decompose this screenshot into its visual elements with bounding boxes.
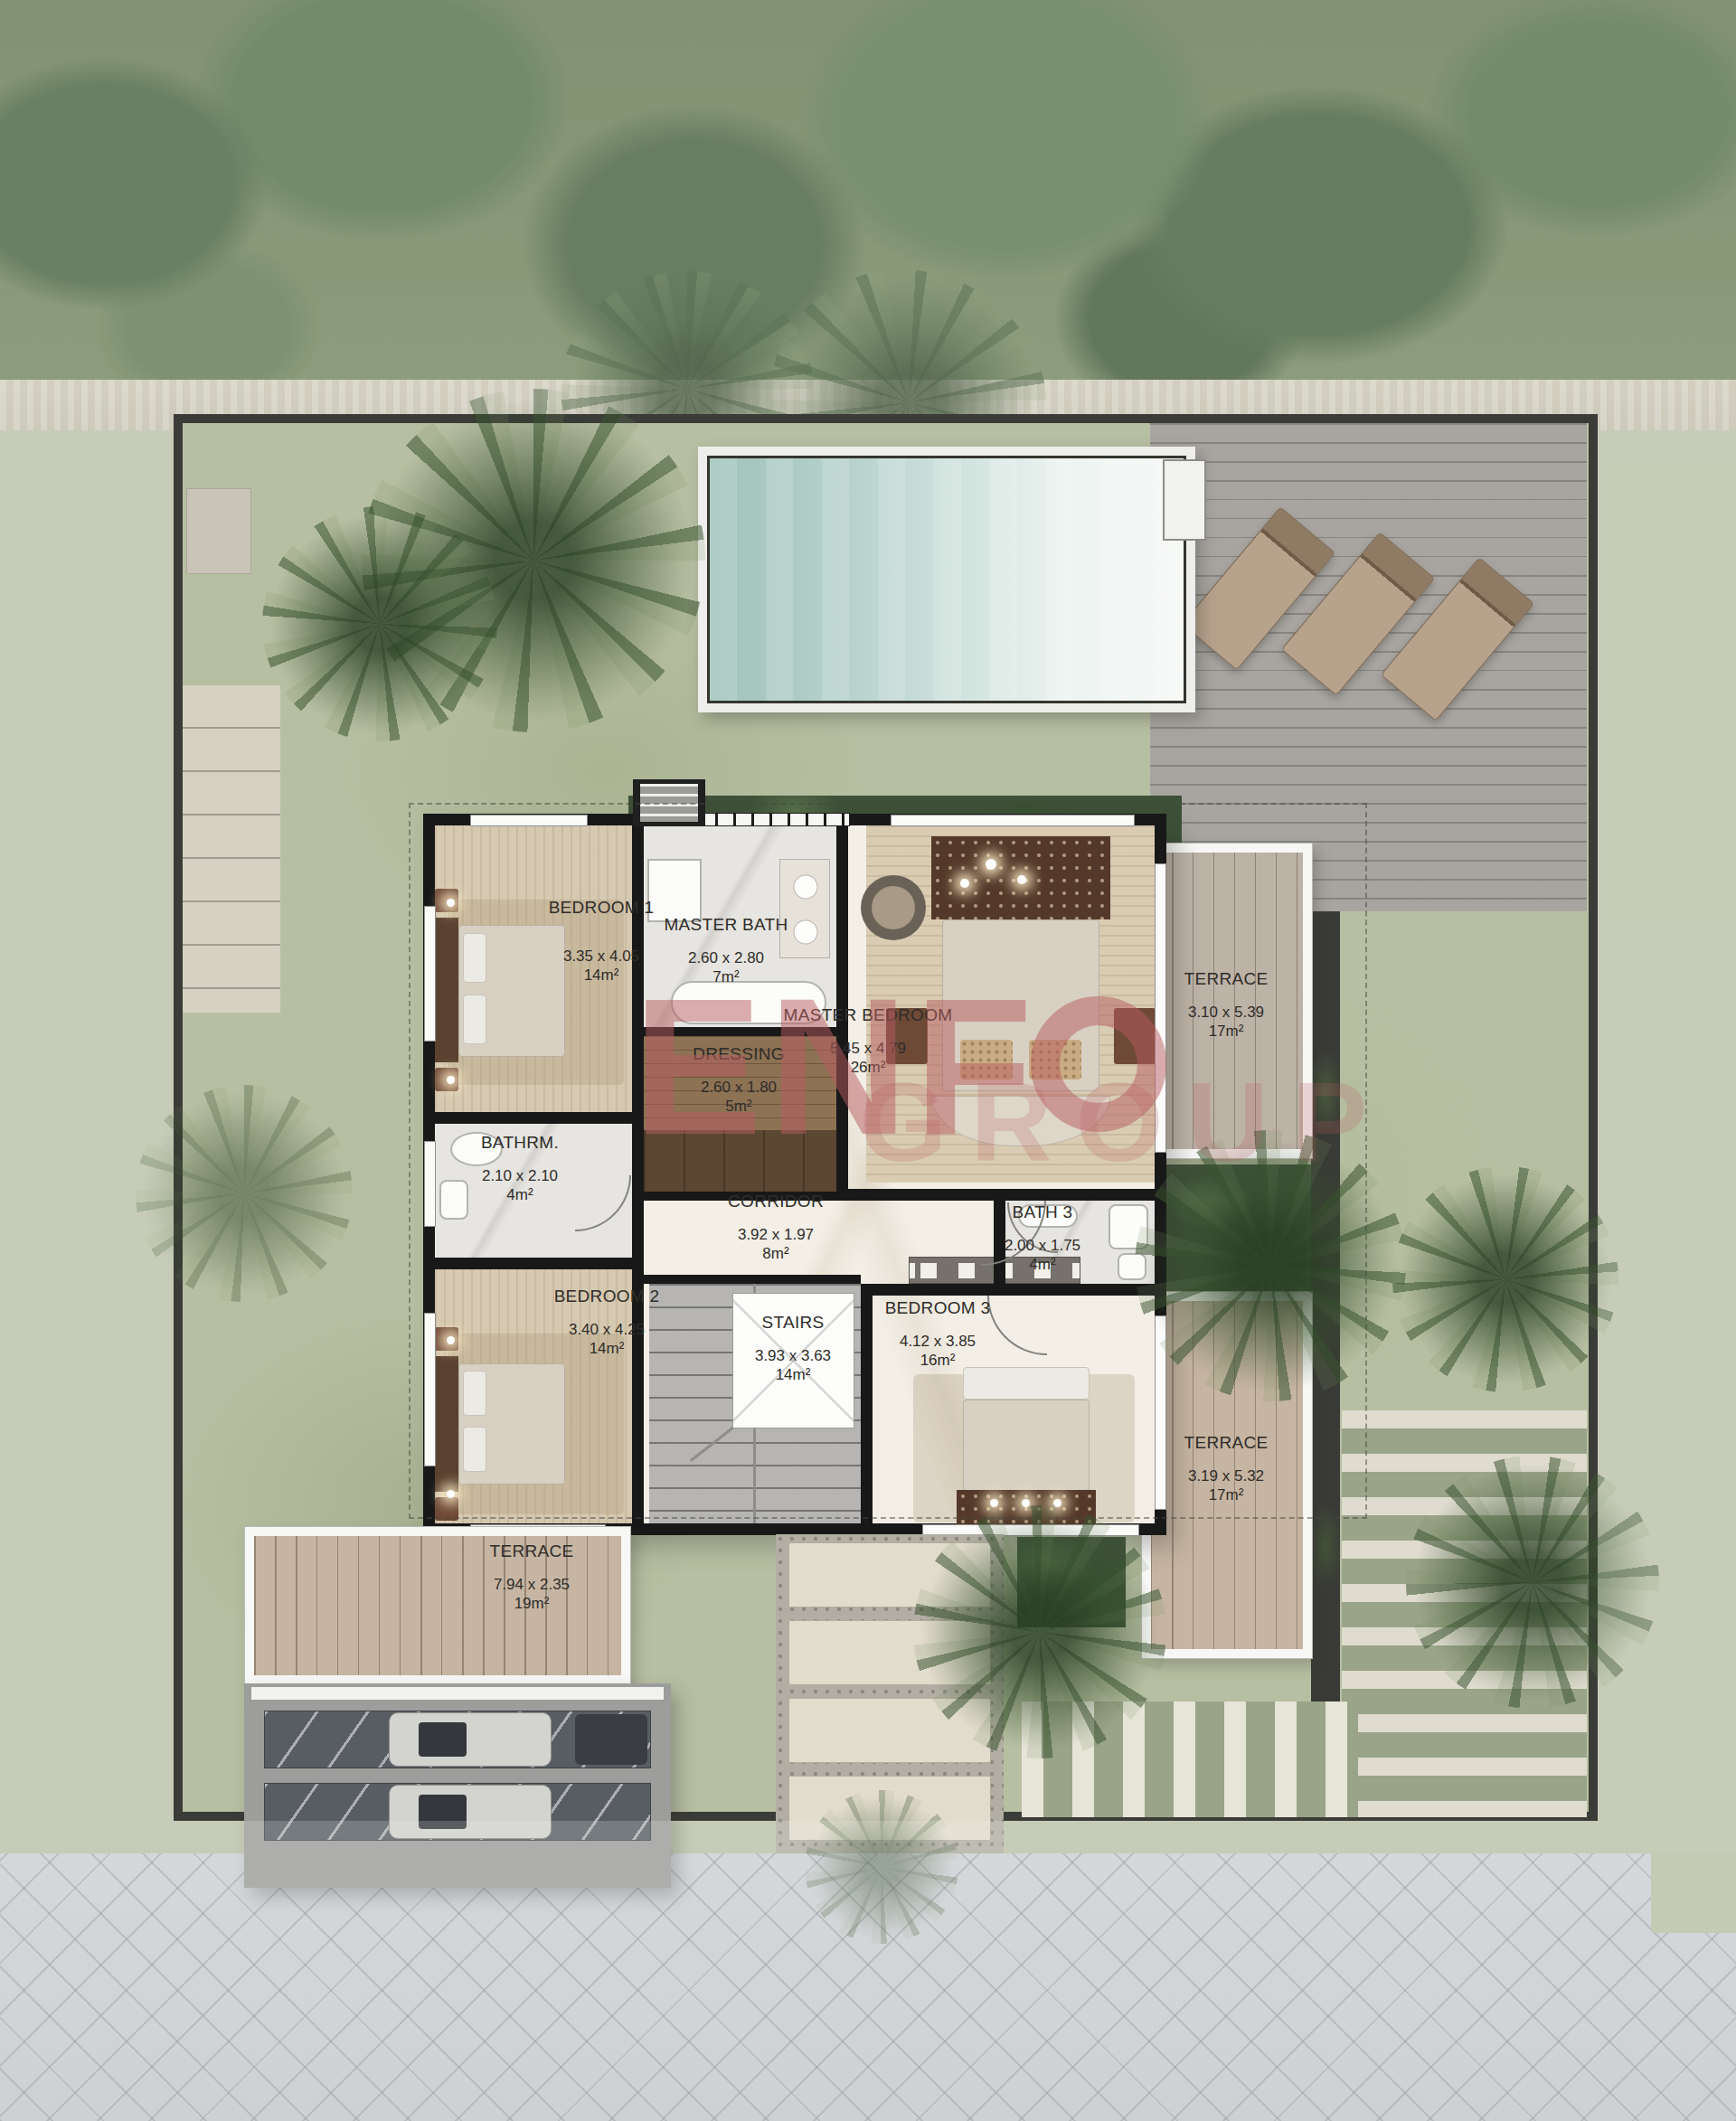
room-dims: 7.94 x 2.35 <box>441 1576 622 1594</box>
car-windshield <box>419 1722 467 1756</box>
car <box>575 1714 647 1765</box>
room-name: CORRIDOR <box>685 1192 866 1212</box>
utility-pad <box>186 488 251 574</box>
car <box>389 1712 552 1767</box>
pool-water <box>707 456 1186 703</box>
room-label-bath-3: BATH 3 2.00 x 1.75 4m² <box>952 1202 1133 1274</box>
room-dims: 3.40 x 4.25 <box>516 1321 697 1339</box>
room-area: 14m² <box>516 1339 697 1358</box>
room-label-bedroom-2: BEDROOM 2 3.40 x 4.25 14m² <box>516 1287 697 1358</box>
side-walkway <box>183 685 280 1013</box>
room-dims: 3.19 x 5.32 <box>1136 1467 1316 1485</box>
garage-trim <box>251 1687 664 1700</box>
room-dims: 3.92 x 1.97 <box>685 1226 866 1244</box>
room-area: 5m² <box>648 1097 829 1116</box>
swimming-pool <box>698 447 1195 712</box>
room-area: 16m² <box>847 1351 1028 1370</box>
haze-overlay <box>0 414 174 1821</box>
room-label-terrace-ne: TERRACE 3.10 x 5.39 17m² <box>1136 969 1316 1041</box>
room-label-master-bedroom: MASTER BEDROOM 5.45 x 4.79 26m² <box>778 1005 958 1077</box>
lawn-patch <box>1651 1853 1736 1933</box>
room-label-bedroom-3: BEDROOM 3 4.12 x 3.85 16m² <box>847 1298 1028 1370</box>
room-name: TERRACE <box>1136 1433 1316 1454</box>
pool-ladder <box>1163 459 1206 541</box>
room-name: BEDROOM 2 <box>516 1287 697 1307</box>
room-dims: 2.10 x 2.10 <box>429 1167 610 1185</box>
room-dims: 4.12 x 3.85 <box>847 1333 1028 1351</box>
room-name: BEDROOM 3 <box>847 1298 1028 1319</box>
room-dims: 2.60 x 1.80 <box>648 1079 829 1097</box>
room-name: TERRACE <box>441 1541 622 1562</box>
room-dims: 5.45 x 4.79 <box>778 1040 958 1058</box>
room-name: BATH 3 <box>952 1202 1133 1223</box>
room-area: 8m² <box>685 1244 866 1263</box>
room-area: 4m² <box>952 1255 1133 1274</box>
room-name: BATHRM. <box>429 1133 610 1154</box>
room-area: 17m² <box>1136 1022 1316 1041</box>
room-area: 17m² <box>1136 1485 1316 1504</box>
palm-tree <box>136 1085 353 1302</box>
car-windshield <box>419 1795 467 1828</box>
room-area: 7m² <box>636 967 816 986</box>
car <box>389 1785 552 1839</box>
room-label-bathrm: BATHRM. 2.10 x 2.10 4m² <box>429 1133 610 1204</box>
room-label-terrace-sw: TERRACE 7.94 x 2.35 19m² <box>441 1541 622 1613</box>
room-area: 4m² <box>429 1185 610 1204</box>
room-label-terrace-se: TERRACE 3.19 x 5.32 17m² <box>1136 1433 1316 1504</box>
room-dims: 2.00 x 1.75 <box>952 1237 1133 1255</box>
room-area: 26m² <box>778 1058 958 1077</box>
room-area: 19m² <box>441 1594 622 1613</box>
room-name: TERRACE <box>1136 969 1316 990</box>
room-dims: 2.60 x 2.80 <box>636 949 816 967</box>
room-label-master-bath: MASTER BATH 2.60 x 2.80 7m² <box>636 915 816 986</box>
room-label-corridor: CORRIDOR 3.92 x 1.97 8m² <box>685 1192 866 1263</box>
room-name: MASTER BEDROOM <box>778 1005 958 1026</box>
room-dims: 3.10 x 5.39 <box>1136 1004 1316 1022</box>
room-name: MASTER BATH <box>636 915 816 936</box>
